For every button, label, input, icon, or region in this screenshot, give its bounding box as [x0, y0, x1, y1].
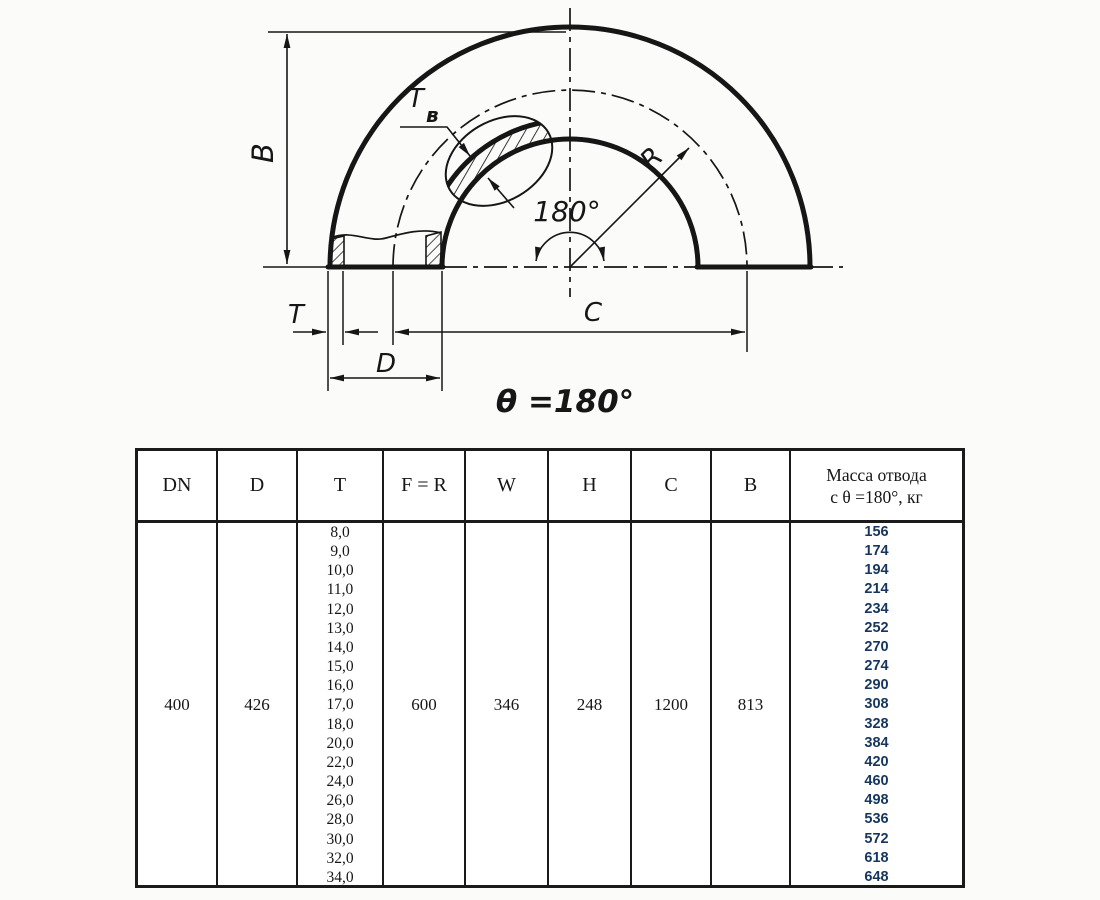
label-tb-main: T — [408, 84, 426, 114]
label-tb-sub: в — [426, 103, 439, 127]
cell-line: 194 — [864, 561, 888, 580]
cell-line: 34,0 — [326, 868, 353, 887]
header-cell-d: D — [218, 451, 298, 523]
label-b: B — [246, 143, 280, 163]
cell-line: 8,0 — [330, 523, 349, 542]
cell-line: 384 — [864, 734, 888, 753]
header-cell-w: W — [466, 451, 549, 523]
cell-line: 9,0 — [330, 542, 349, 561]
cell-line: 234 — [864, 600, 888, 619]
cell-line: 498 — [864, 791, 888, 810]
page-root: B T в R 180° T D C θ =180° DN D T F = R … — [0, 0, 1100, 900]
cell-line: 20,0 — [326, 734, 353, 753]
cell-line: 17,0 — [326, 695, 353, 714]
label-d: D — [376, 349, 396, 379]
cell-line: 18,0 — [326, 715, 353, 734]
cell-line: 15,0 — [326, 657, 353, 676]
header-cell-c: C — [632, 451, 712, 523]
dimensions-table: DN D T F = R W H C B Масса отвода с θ =1… — [135, 448, 965, 888]
header-cell-t: T — [298, 451, 384, 523]
header-cell-mass: Масса отвода с θ =180°, кг — [791, 451, 962, 523]
cell-t-values: 8,09,010,011,012,013,014,015,016,017,018… — [298, 523, 384, 887]
cell-c: 1200 — [632, 523, 712, 887]
cell-line: 572 — [864, 830, 888, 849]
label-c: C — [584, 298, 603, 328]
cell-line: 618 — [864, 849, 888, 868]
label-theta-note: θ =180° — [496, 384, 634, 420]
cell-line: 420 — [864, 753, 888, 772]
cell-line: 308 — [864, 695, 888, 714]
label-t: T — [288, 300, 306, 330]
cell-line: 16,0 — [326, 676, 353, 695]
cell-line: 252 — [864, 619, 888, 638]
header-cell-b: B — [712, 451, 791, 523]
left-wall-section — [329, 236, 344, 267]
cell-line: 536 — [864, 810, 888, 829]
cell-line: 648 — [864, 868, 888, 887]
right-wall-section — [426, 232, 441, 267]
label-angle-180: 180° — [533, 195, 600, 228]
header-cell-h: H — [549, 451, 632, 523]
cell-line: 328 — [864, 715, 888, 734]
cell-line: 214 — [864, 580, 888, 599]
cell-line: 12,0 — [326, 600, 353, 619]
cell-line: 26,0 — [326, 791, 353, 810]
cell-line: 10,0 — [326, 561, 353, 580]
technical-drawing: B T в R 180° T D C θ =180° — [0, 0, 1100, 445]
break-wavy-line — [331, 231, 441, 239]
cell-fr: 600 — [384, 523, 466, 887]
cell-line: 274 — [864, 657, 888, 676]
cell-line: 32,0 — [326, 849, 353, 868]
cell-h: 248 — [549, 523, 632, 887]
cell-line: 460 — [864, 772, 888, 791]
cell-line: 14,0 — [326, 638, 353, 657]
cell-line: 24,0 — [326, 772, 353, 791]
header-cell-fr: F = R — [384, 451, 466, 523]
cell-line: 156 — [864, 523, 888, 542]
cell-dn: 400 — [138, 523, 218, 887]
cell-mass-values: 1561741942142342522702742903083283844204… — [791, 523, 962, 887]
mass-header-line1: Масса отвода — [826, 464, 926, 486]
cell-w: 346 — [466, 523, 549, 887]
cell-line: 30,0 — [326, 830, 353, 849]
cell-line: 13,0 — [326, 619, 353, 638]
cell-line: 22,0 — [326, 753, 353, 772]
cell-line: 174 — [864, 542, 888, 561]
label-r: R — [634, 141, 669, 176]
cell-line: 11,0 — [327, 580, 354, 599]
mass-header-line2: с θ =180°, кг — [830, 486, 922, 508]
header-cell-dn: DN — [138, 451, 218, 523]
cell-line: 290 — [864, 676, 888, 695]
cell-line: 28,0 — [326, 810, 353, 829]
cell-b: 813 — [712, 523, 791, 887]
cell-line: 270 — [864, 638, 888, 657]
cell-d: 426 — [218, 523, 298, 887]
